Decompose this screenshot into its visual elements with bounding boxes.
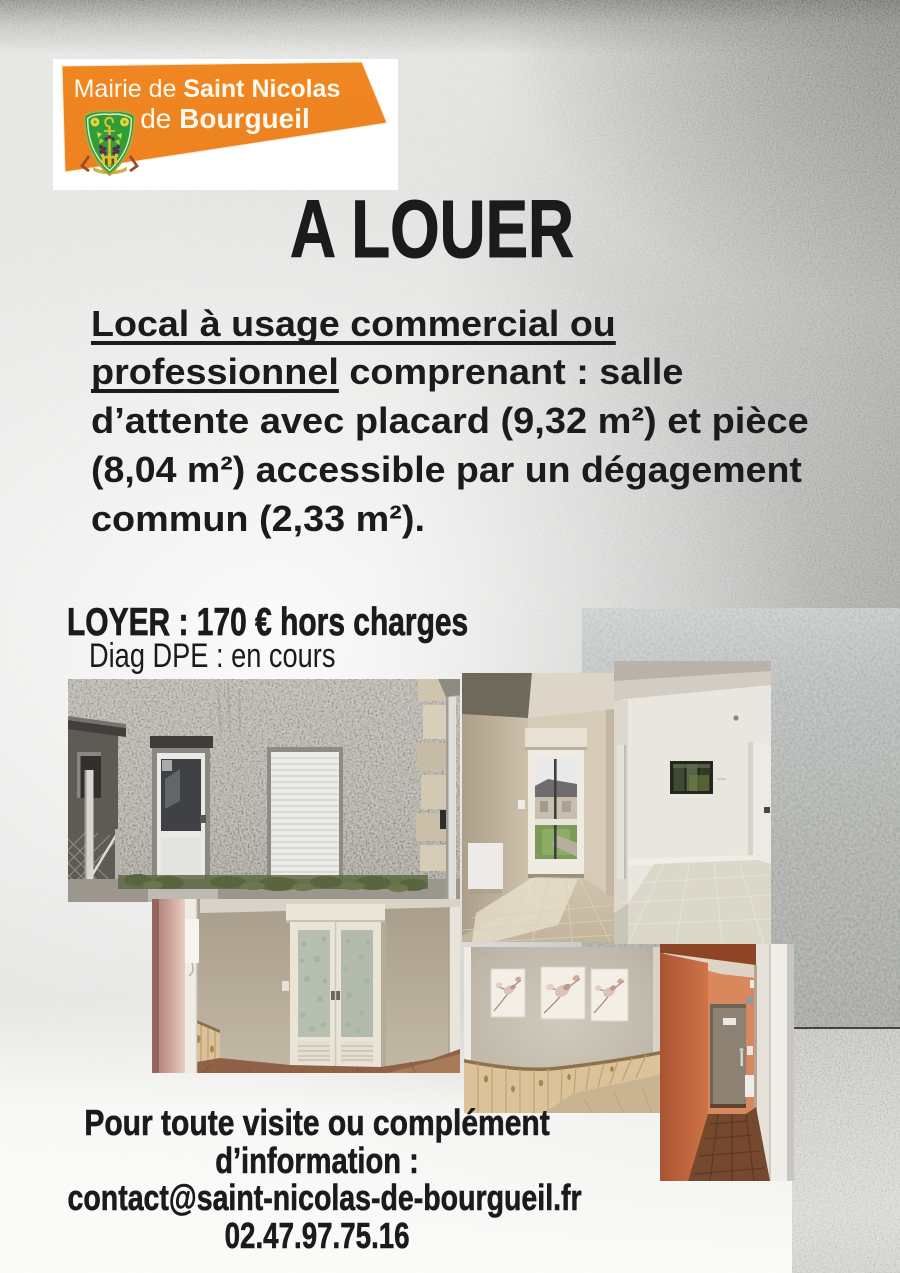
svg-text:de Bourgueil: de Bourgueil	[140, 103, 310, 134]
svg-text:Mairie de Saint Nicolas: Mairie de Saint Nicolas	[74, 75, 341, 103]
